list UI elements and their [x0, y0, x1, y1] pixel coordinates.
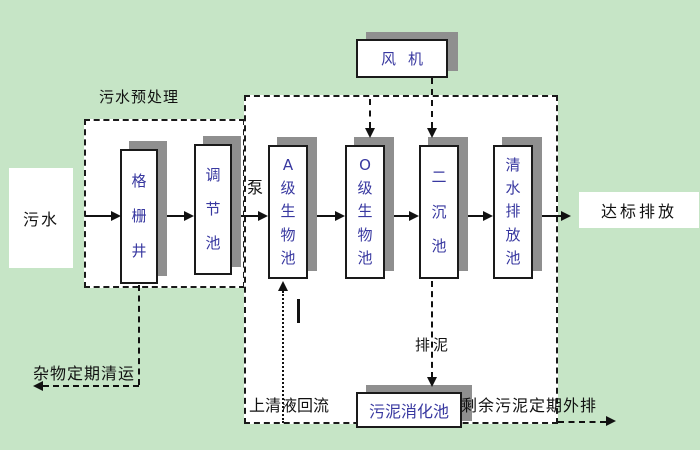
fan-to-sedimentation-arrowhead [427, 128, 437, 138]
pretreatment-title: 污水预处理 [99, 89, 179, 106]
vertical-tick-mark [297, 299, 300, 323]
tank-grid-well: 格栅井 [120, 149, 158, 284]
sludge-discharge-arrowhead [427, 377, 437, 387]
sedimentation-to-clearwater-line [459, 215, 485, 217]
supernatant-return-arrowhead [278, 281, 288, 291]
clearwater-to-discharge-line [533, 215, 563, 217]
supernatant-return-label: 上清液回流 [249, 397, 329, 415]
influent-to-gridwell-line [85, 215, 113, 217]
sludge-discharge-label: 排泥 [415, 337, 451, 354]
influent-to-gridwell-arrowhead [111, 211, 121, 221]
fan-to-sedimentation-line [431, 78, 433, 128]
fan-to-obio-arrowhead [365, 128, 375, 138]
gridwell-debris-down-line [138, 285, 140, 385]
abio-to-obio-arrowhead [335, 211, 345, 221]
tank-clear-water-discharge: 清水排放池 [493, 145, 533, 279]
tank-a-biological: A级生物池 [268, 145, 308, 279]
excess-sludge-out-arrowhead [606, 416, 616, 426]
influent-label-box: 污水 [9, 168, 73, 268]
regulating-to-abio-line [230, 215, 260, 217]
sludge-discharge-line [431, 281, 433, 378]
excess-sludge-out-label: 剩余污泥定期外排 [461, 397, 597, 415]
tank-secondary-sedimentation: 二沉池 [419, 145, 459, 279]
fan-to-obio-line [369, 99, 371, 128]
regulating-to-abio-arrowhead [258, 211, 268, 221]
excess-sludge-out-line [558, 421, 606, 423]
discharge-label-box: 达标排放 [579, 192, 699, 228]
wastewater-process-flow-diagram: 污水 格栅井 调节池 A级生物池 O级生物池 二沉池 清水排放池 风机 污泥消化… [0, 0, 700, 450]
gridwell-to-regulating-line [162, 215, 186, 217]
gridwell-to-regulating-arrowhead [184, 211, 194, 221]
debris-removal-label: 杂物定期清运 [33, 365, 135, 383]
obio-to-sedimentation-line [385, 215, 411, 217]
sedimentation-to-clearwater-arrowhead [483, 211, 493, 221]
abio-to-obio-line [308, 215, 337, 217]
tank-regulating: 调节池 [194, 144, 232, 275]
pump-label: 泵 [247, 179, 263, 197]
clearwater-to-discharge-arrowhead [561, 211, 571, 221]
tank-o-biological: O级生物池 [345, 145, 385, 279]
tank-sludge-digestion: 污泥消化池 [356, 392, 462, 428]
fan-box: 风机 [356, 39, 448, 78]
debris-removal-line [43, 385, 139, 387]
obio-to-sedimentation-arrowhead [409, 211, 419, 221]
